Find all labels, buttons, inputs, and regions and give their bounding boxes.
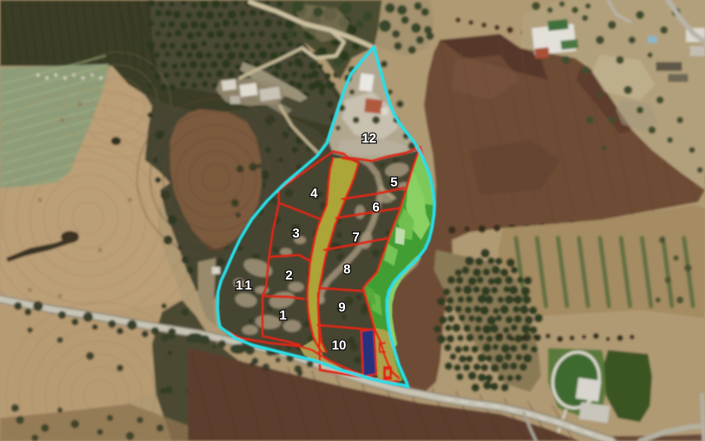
- svg-text:11: 11: [236, 278, 255, 293]
- svg-text:1: 1: [279, 308, 286, 323]
- svg-text:10: 10: [332, 338, 346, 353]
- svg-text:5: 5: [390, 175, 397, 190]
- svg-text:4: 4: [310, 186, 318, 201]
- svg-text:3: 3: [292, 226, 299, 241]
- svg-text:8: 8: [343, 262, 350, 277]
- svg-text:9: 9: [338, 300, 345, 315]
- svg-text:12: 12: [362, 131, 376, 146]
- svg-text:2: 2: [285, 268, 292, 283]
- svg-text:7: 7: [352, 230, 359, 245]
- svg-text:6: 6: [372, 200, 379, 215]
